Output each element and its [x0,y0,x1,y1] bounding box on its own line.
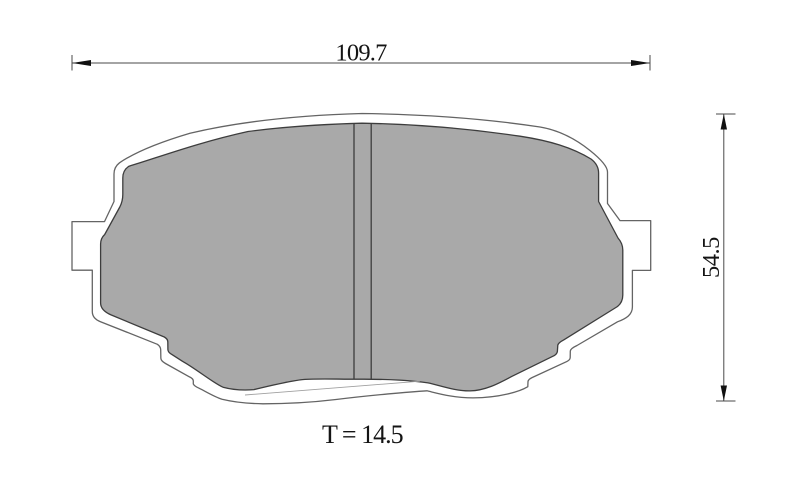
svg-text:54.5: 54.5 [698,237,725,278]
svg-text:T = 14.5: T = 14.5 [322,420,403,449]
svg-text:109.7: 109.7 [335,40,387,67]
